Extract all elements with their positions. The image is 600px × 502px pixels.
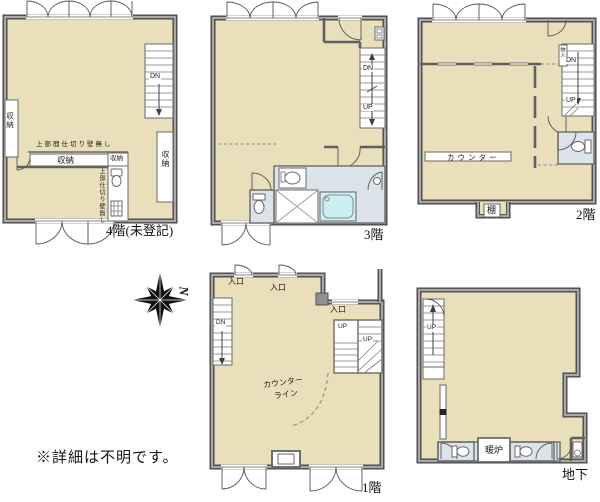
entry-fixture: [375, 27, 384, 40]
no-upper-partition-note: 上部間仕切り壁無し: [36, 142, 113, 149]
plan-3f-drawing: [208, 2, 392, 248]
laundry-space: [276, 190, 318, 223]
faucet-fixture: [374, 178, 381, 185]
dn-label: DN: [565, 57, 577, 64]
closet-label-left: 収納: [6, 112, 14, 129]
closet-label-right: 収納: [161, 150, 169, 168]
plan-4f: DN 収納 上部間仕切り壁無し 収納 収納 上部仕切り壁無し 収納 4階(未登記…: [0, 0, 202, 246]
north-label: N: [176, 286, 192, 295]
floor-title-3f: 3階: [364, 228, 384, 241]
plan-basement-drawing: [416, 285, 600, 485]
staircase-dn: [145, 44, 173, 118]
pipe-shaft: [440, 385, 447, 439]
bathtub: [320, 192, 356, 221]
dn-label: DN: [215, 320, 226, 327]
toilet-fixture: [111, 169, 122, 187]
staircase-dn: [213, 298, 232, 365]
compass-star-icon: [127, 267, 193, 333]
entrance-label-1: 入口: [228, 278, 244, 286]
entrance-label-2: 入口: [270, 284, 286, 292]
dn-label: DN: [149, 73, 161, 80]
toilet-room: [558, 132, 594, 164]
no-upper-partition-note-vertical: 上部仕切り壁無し: [98, 168, 104, 224]
staircase-up: [423, 299, 444, 379]
plan-2f-drawing: [416, 4, 600, 226]
floor-title-1f: 1階: [362, 481, 382, 494]
shelf-label: 棚: [487, 206, 496, 215]
disclaimer-note: ※詳細は不明です。: [36, 446, 179, 467]
up-label-2: UP: [362, 337, 373, 344]
plan-2f: DN UP 物入 カウンター 棚 2階: [416, 4, 600, 226]
closet-label-small: 収納: [110, 156, 123, 163]
up-label: UP: [426, 325, 437, 332]
small-storage-label: 物入: [560, 47, 565, 57]
plan-3f: DN UP 3階: [208, 2, 392, 248]
entrance-label-3: 入口: [330, 306, 346, 314]
washbasin: [279, 168, 306, 188]
dn-label: DN: [362, 65, 374, 72]
compass-rose: N: [127, 267, 193, 333]
up-label: UP: [565, 97, 577, 104]
grate-fixture: [111, 201, 122, 216]
floor-title-basement: 地下: [562, 468, 588, 481]
floor-title-4f: 4階(未登記): [106, 224, 173, 237]
closet-label-mid: 収納: [57, 156, 74, 165]
floorplan-sheet: DN 収納 上部間仕切り壁無し 収納 収納 上部仕切り壁無し 収納 4階(未登記…: [0, 0, 600, 502]
staircase: [360, 48, 385, 128]
up-label-1: UP: [337, 324, 348, 331]
up-label: UP: [362, 104, 374, 111]
floor-title-2f: 2階: [576, 208, 596, 221]
counter-label: カウンター: [447, 154, 500, 162]
entry-pillar: [316, 293, 328, 305]
entry-step: [272, 451, 300, 467]
fireplace-label: 暖炉: [485, 446, 503, 455]
plan-basement: UP 暖炉 地下: [416, 285, 600, 485]
plan-1f: 入口 入口 入口 DN UP UP カウンター ライン 1階: [206, 263, 392, 500]
